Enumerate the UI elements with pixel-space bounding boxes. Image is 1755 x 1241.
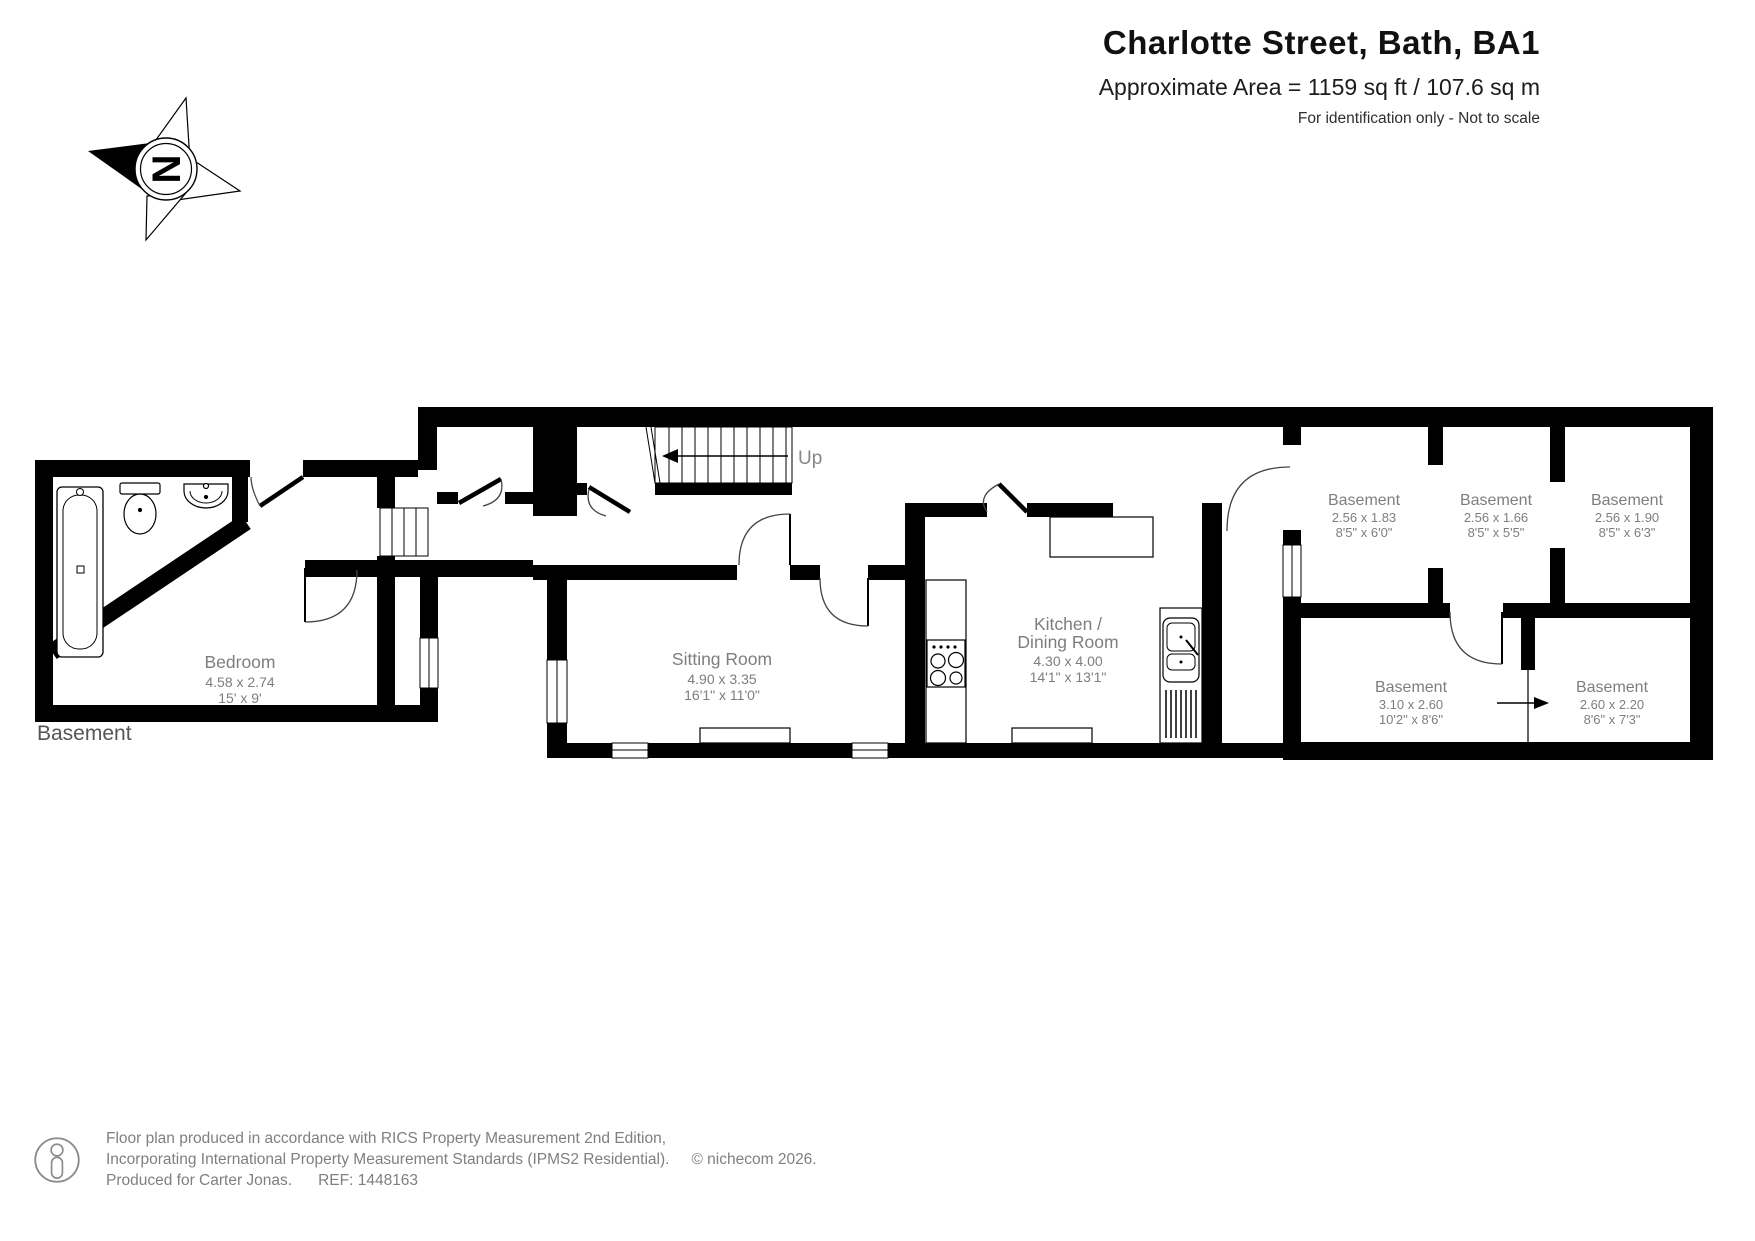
svg-text:10'2" x 8'6": 10'2" x 8'6" <box>1379 712 1443 727</box>
footer-text: Floor plan produced in accordance with R… <box>106 1128 817 1191</box>
basement-c-label: Basement 2.56 x 1.90 8'5" x 6'3" <box>1591 492 1664 540</box>
basement-a-label: Basement 2.56 x 1.83 8'5" x 6'0" <box>1328 492 1401 540</box>
svg-text:Sitting Room: Sitting Room <box>672 649 772 669</box>
svg-text:15' x 9': 15' x 9' <box>218 690 261 706</box>
basement-d-label: Basement 3.10 x 2.60 10'2" x 8'6" <box>1375 679 1448 727</box>
stove-icon <box>927 640 965 687</box>
copyright-text: © nichecom 2026. <box>691 1151 816 1168</box>
svg-text:8'5" x 6'3": 8'5" x 6'3" <box>1599 525 1656 540</box>
basin-icon <box>184 484 228 509</box>
svg-text:2.56 x 1.66: 2.56 x 1.66 <box>1464 510 1528 525</box>
staircase: Up <box>646 427 822 483</box>
svg-text:4.90 x 3.35: 4.90 x 3.35 <box>687 671 756 687</box>
svg-text:8'6" x 7'3": 8'6" x 7'3" <box>1584 712 1641 727</box>
footer-line3: Produced for Carter Jonas.REF: 1448163 <box>106 1170 817 1191</box>
svg-text:Dining Room: Dining Room <box>1017 632 1118 652</box>
walls <box>35 407 1713 760</box>
up-label: Up <box>798 448 822 469</box>
kitchen-dining-label: Kitchen / Dining Room 4.30 x 4.00 14'1" … <box>1017 614 1118 685</box>
svg-text:2.60 x 2.20: 2.60 x 2.20 <box>1580 697 1644 712</box>
svg-text:4.30 x 4.00: 4.30 x 4.00 <box>1033 653 1102 669</box>
compass-n-label: N <box>145 155 189 184</box>
svg-text:Basement: Basement <box>1591 492 1664 509</box>
svg-text:Basement: Basement <box>1328 492 1401 509</box>
svg-text:Basement: Basement <box>1576 679 1649 696</box>
level-change-arrow <box>1497 670 1549 742</box>
svg-text:2.56 x 1.90: 2.56 x 1.90 <box>1595 510 1659 525</box>
svg-text:Kitchen /: Kitchen / <box>1034 614 1102 634</box>
svg-text:3.10 x 2.60: 3.10 x 2.60 <box>1379 697 1443 712</box>
svg-text:4.58 x 2.74: 4.58 x 2.74 <box>205 674 274 690</box>
reference-number: REF: 1448163 <box>318 1172 418 1189</box>
footer: Floor plan produced in accordance with R… <box>28 1128 817 1191</box>
hearths <box>700 728 1092 743</box>
svg-text:8'5" x 5'5": 8'5" x 5'5" <box>1468 525 1525 540</box>
floorplan-page: Charlotte Street, Bath, BA1 Approximate … <box>0 0 1755 1241</box>
bedroom-label: Bedroom 4.58 x 2.74 15' x 9' <box>204 652 275 706</box>
svg-text:Bedroom: Bedroom <box>204 652 275 672</box>
sitting-room-label: Sitting Room 4.90 x 3.35 16'1" x 11'0" <box>672 649 772 703</box>
compass-rose: N <box>88 98 240 240</box>
basement-b-label: Basement 2.56 x 1.66 8'5" x 5'5" <box>1460 492 1533 540</box>
svg-text:14'1" x 13'1": 14'1" x 13'1" <box>1030 669 1107 685</box>
footer-line1: Floor plan produced in accordance with R… <box>106 1128 817 1149</box>
svg-text:Basement: Basement <box>1375 679 1448 696</box>
basement-e-label: Basement 2.60 x 2.20 8'6" x 7'3" <box>1576 679 1649 727</box>
svg-text:Basement: Basement <box>1460 492 1533 509</box>
toilet-icon <box>120 483 160 534</box>
svg-text:8'5" x 6'0": 8'5" x 6'0" <box>1336 525 1393 540</box>
bathtub-icon <box>57 487 103 657</box>
floor-name-label: Basement <box>37 722 132 745</box>
small-steps <box>380 508 428 556</box>
svg-text:16'1" x 11'0": 16'1" x 11'0" <box>684 687 760 703</box>
person-scale-icon <box>28 1131 86 1189</box>
floorplan-drawing: N <box>0 0 1755 1241</box>
footer-line2: Incorporating International Property Mea… <box>106 1149 817 1170</box>
svg-text:2.56 x 1.83: 2.56 x 1.83 <box>1332 510 1396 525</box>
